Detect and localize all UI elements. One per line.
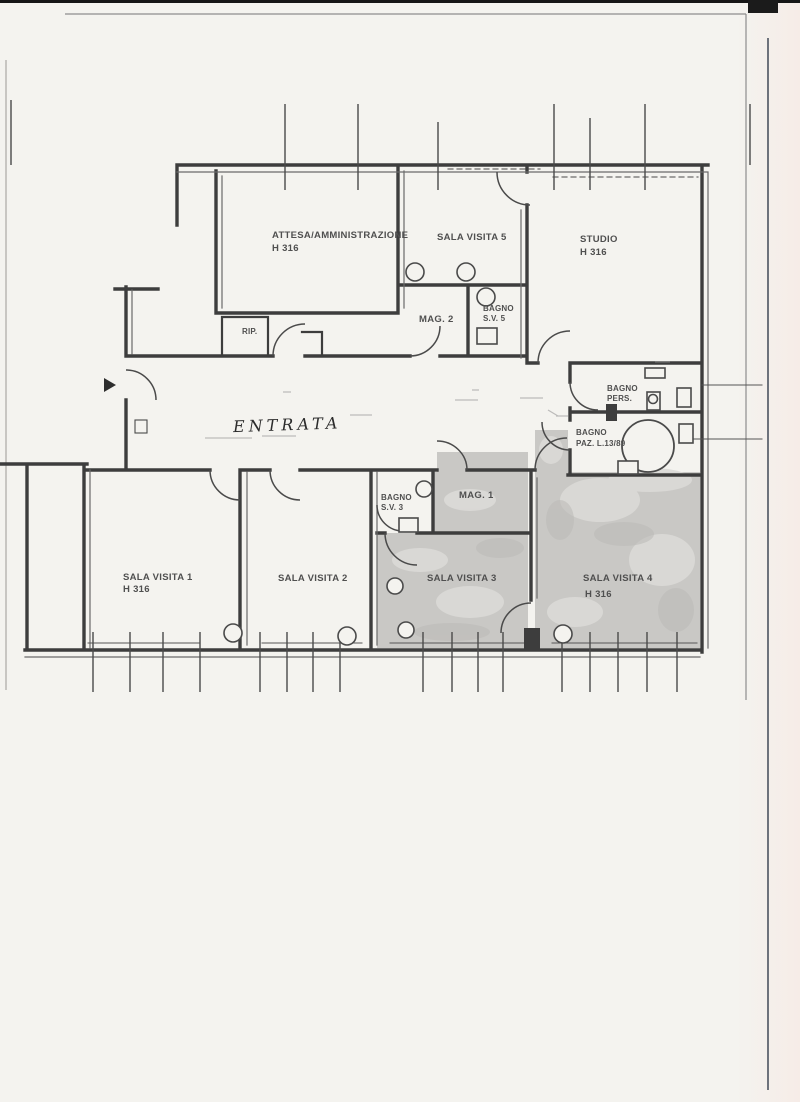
room-label-sala-visita-1: SALA VISITA 1 bbox=[123, 572, 193, 583]
room-label-entrata: ENTRATA bbox=[232, 413, 342, 436]
wc-fixture bbox=[399, 518, 418, 532]
room-label-attesa: ATTESA/AMMINISTRAZIONE bbox=[272, 230, 408, 241]
wc-fixture bbox=[618, 461, 638, 474]
room-height-studio: H 316 bbox=[580, 247, 607, 258]
room-height-attesa: H 316 bbox=[272, 243, 299, 254]
room-label-sala-visita-3: SALA VISITA 3 bbox=[427, 573, 497, 584]
room-label-bagno-pers: BAGNO bbox=[607, 384, 638, 393]
room-label-sala-visita-4: SALA VISITA 4 bbox=[583, 573, 653, 584]
wc-fixture bbox=[645, 368, 665, 378]
room-label-sala-visita-2: SALA VISITA 2 bbox=[278, 573, 348, 584]
radiator-circle bbox=[398, 622, 414, 638]
wc-fixture bbox=[679, 424, 693, 443]
radiator-circle bbox=[338, 627, 356, 645]
switch-symbol bbox=[135, 420, 147, 433]
room-sublabel-bagno-paz: PAZ. L.13/89 bbox=[576, 439, 626, 448]
room-label-mag-2: MAG. 2 bbox=[419, 314, 454, 325]
sink-circle bbox=[649, 395, 658, 404]
room-label-bagno-sv5: BAGNO bbox=[483, 304, 514, 313]
room-label-bagno-sv3: BAGNO bbox=[381, 493, 412, 502]
radiator-circle bbox=[457, 263, 475, 281]
radiator-circle bbox=[387, 578, 403, 594]
wc-fixture bbox=[677, 388, 691, 407]
room-label-studio: STUDIO bbox=[580, 234, 618, 245]
wc-fixture bbox=[477, 328, 497, 344]
sink-circle bbox=[416, 481, 432, 497]
room-label-sala-visita-5: SALA VISITA 5 bbox=[437, 232, 507, 243]
radiator-circle bbox=[224, 624, 242, 642]
radiator-circle bbox=[406, 263, 424, 281]
room-label-bagno-paz: BAGNO bbox=[576, 428, 607, 437]
room-sublabel-bagno-sv5: S.V. 5 bbox=[483, 314, 506, 323]
room-height-sala-visita-4: H 316 bbox=[585, 589, 612, 600]
room-sublabel-bagno-pers: PERS. bbox=[607, 394, 632, 403]
radiator-circle bbox=[554, 625, 572, 643]
scanned-floor-plan-page: ATTESA/AMMINISTRAZIONE H 316 SALA VISITA… bbox=[0, 0, 800, 1102]
room-height-sala-visita-1: H 316 bbox=[123, 584, 150, 595]
floor-plan-drawing: ATTESA/AMMINISTRAZIONE H 316 SALA VISITA… bbox=[0, 0, 800, 1102]
room-label-mag-1: MAG. 1 bbox=[459, 490, 494, 501]
room-label-rip: RIP. bbox=[242, 327, 257, 336]
room-sublabel-bagno-sv3: S.V. 3 bbox=[381, 503, 404, 512]
